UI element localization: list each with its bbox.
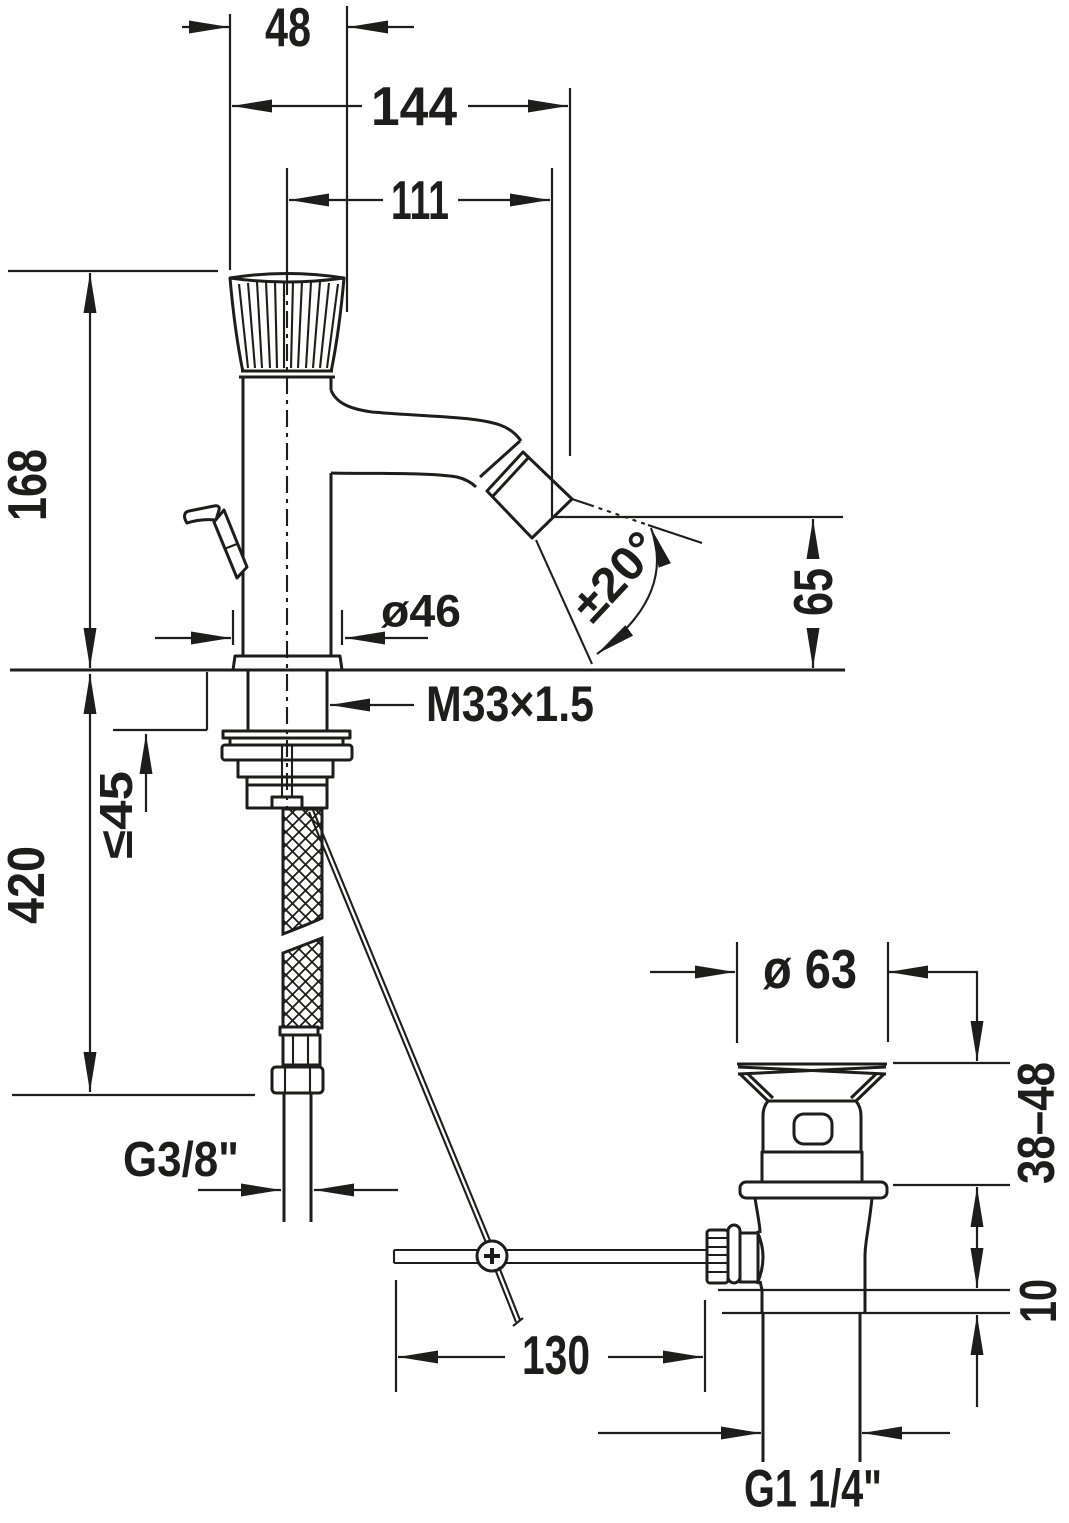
spout-top bbox=[331, 390, 521, 441]
dim-shank-thread-label: M33×1.5 bbox=[426, 676, 594, 732]
spray-head bbox=[487, 452, 572, 538]
waste-flange bbox=[740, 1182, 887, 1198]
waste-assembly bbox=[707, 1064, 887, 1462]
waste-window bbox=[794, 1114, 832, 1144]
hose-nut bbox=[272, 1067, 323, 1093]
waste-collar bbox=[762, 1152, 862, 1182]
spout-bottom bbox=[331, 473, 476, 487]
popup-rod bbox=[309, 810, 707, 1326]
dim-rod-reach-label: 130 bbox=[522, 1324, 590, 1386]
supply-hose bbox=[272, 809, 323, 1222]
technical-drawing: 48 144 111 168 ø46 ±20° 65 M33×1.5 ≤45 4… bbox=[0, 0, 1069, 1523]
dim-waste-diameter-label: ø 63 bbox=[763, 938, 857, 1000]
dim-waste-thread-label: G1 1/4" bbox=[744, 1460, 882, 1519]
rod-boss bbox=[740, 1233, 758, 1282]
rod-capsule bbox=[728, 1225, 740, 1283]
horizontal-rod bbox=[394, 1250, 707, 1263]
dim-height-label: 168 bbox=[0, 449, 58, 521]
dim-base-diameter-label: ø46 bbox=[381, 586, 461, 637]
drawing-canvas: 48 144 111 168 ø46 ±20° 65 M33×1.5 ≤45 4… bbox=[0, 0, 1069, 1523]
dim-supply-thread-label: G3/8" bbox=[123, 1133, 239, 1187]
dim-reach-spout-label: 111 bbox=[391, 169, 449, 231]
dim-max-deck-label: ≤45 bbox=[90, 771, 142, 859]
dim-outlet-height-label: 65 bbox=[782, 568, 844, 616]
dim-reach-total-label: 144 bbox=[371, 75, 457, 137]
handle-flutes bbox=[239, 281, 338, 368]
dim-waste-range-label: 38–48 bbox=[1008, 1062, 1066, 1184]
dim-hose-length-label: 420 bbox=[0, 846, 56, 924]
hose-ferrule bbox=[283, 1035, 320, 1065]
dim-waste-collar-label: 10 bbox=[1010, 1279, 1068, 1323]
hose-lower bbox=[283, 938, 322, 1028]
dim-handle-width-label: 48 bbox=[265, 0, 311, 58]
